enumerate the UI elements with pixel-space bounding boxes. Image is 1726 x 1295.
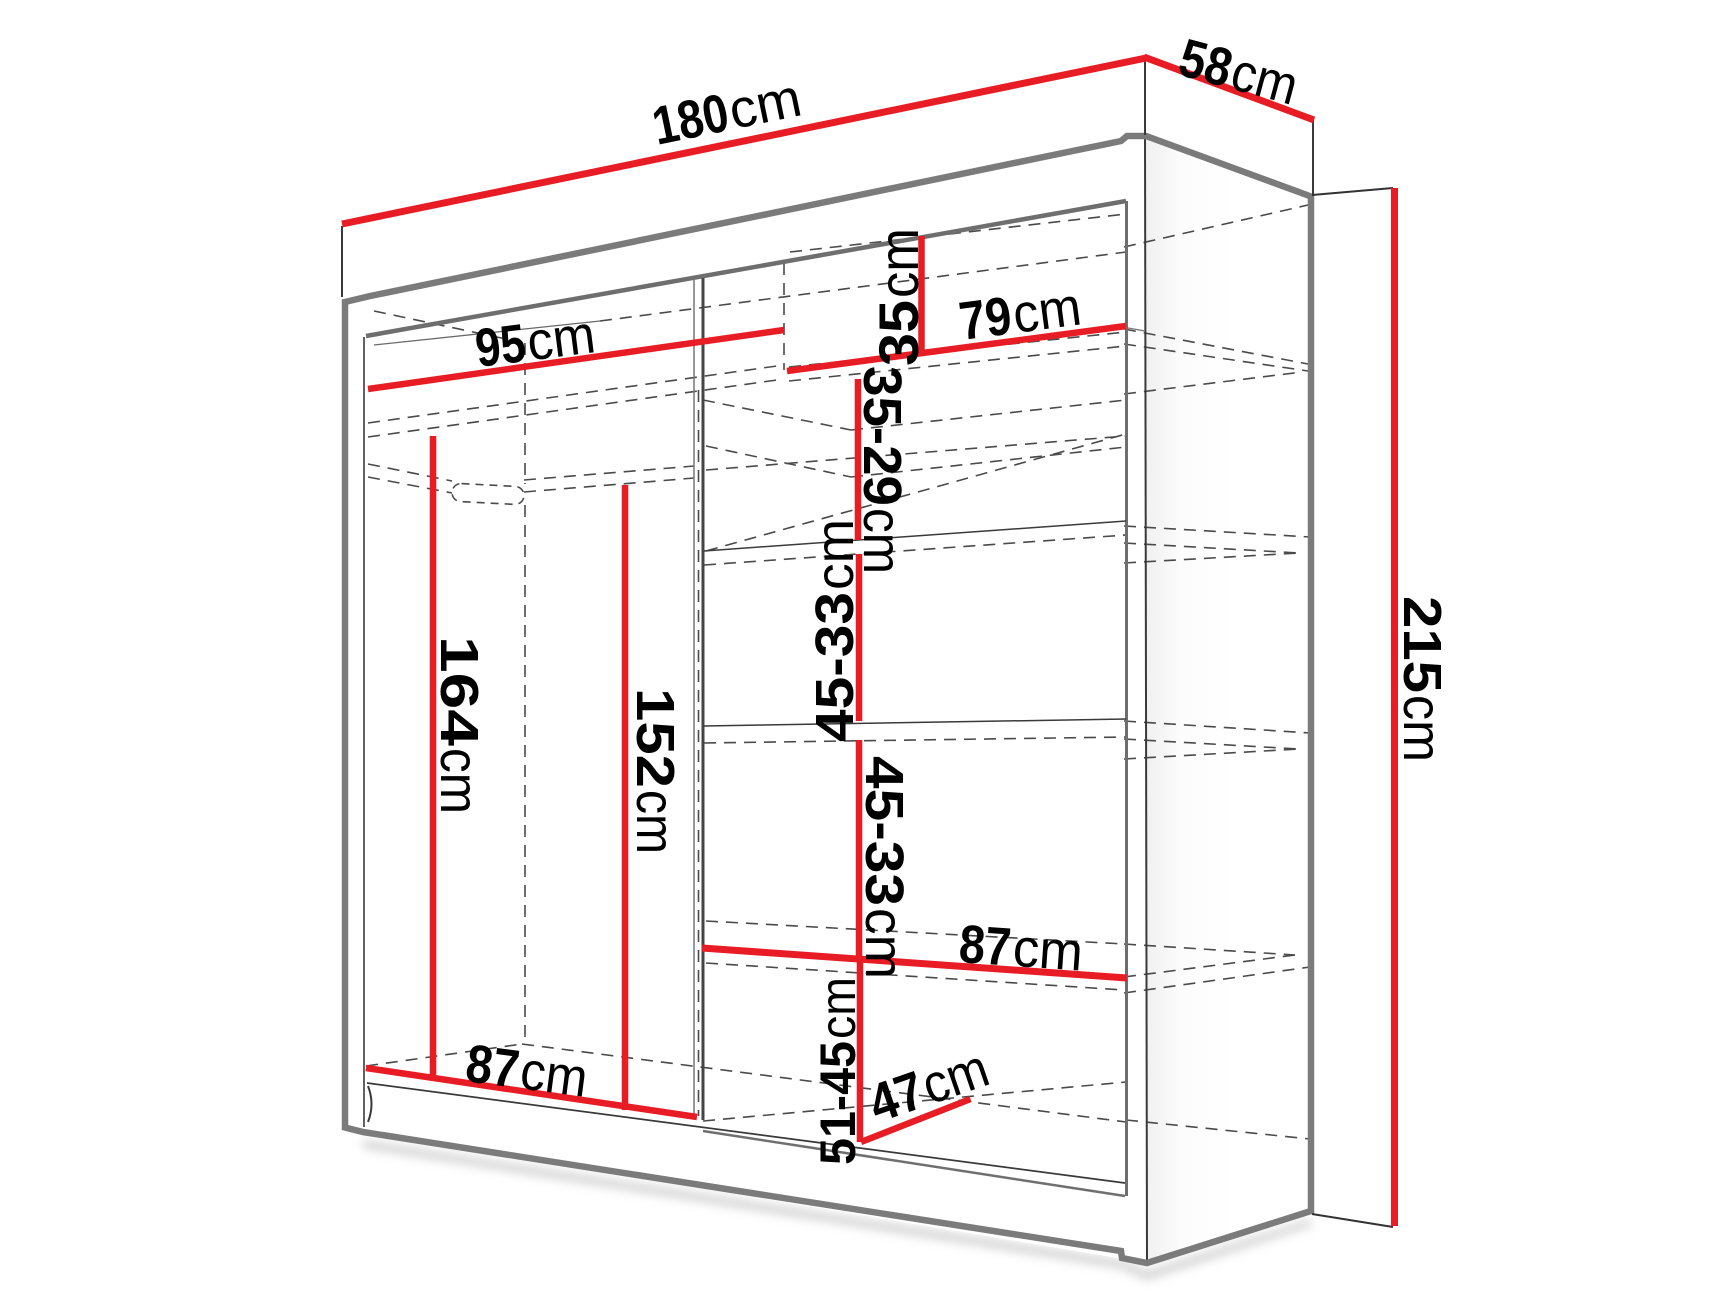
svg-text:95: 95 [472,313,529,379]
svg-text:cm: cm [524,304,599,372]
svg-text:cm: cm [1011,918,1085,983]
svg-text:215: 215 [1392,596,1452,693]
svg-text:152: 152 [625,688,685,788]
svg-text:164: 164 [429,636,489,746]
svg-text:51-45: 51-45 [810,1041,866,1165]
svg-text:cm: cm [1009,276,1084,344]
svg-text:79: 79 [956,286,1015,352]
svg-text:35: 35 [867,300,930,366]
svg-text:cm: cm [625,790,685,854]
svg-text:cm: cm [810,977,866,1039]
svg-text:cm: cm [805,519,865,590]
svg-text:45-33: 45-33 [854,756,914,906]
svg-text:cm: cm [429,748,489,814]
svg-text:cm: cm [1392,695,1452,762]
svg-text:35-29: 35-29 [852,366,912,506]
svg-text:87: 87 [957,914,1013,977]
svg-text:cm: cm [867,228,930,298]
svg-text:cm: cm [517,1041,591,1109]
svg-text:cm: cm [854,908,914,979]
svg-text:45-33: 45-33 [805,592,865,742]
svg-text:87: 87 [462,1033,522,1099]
